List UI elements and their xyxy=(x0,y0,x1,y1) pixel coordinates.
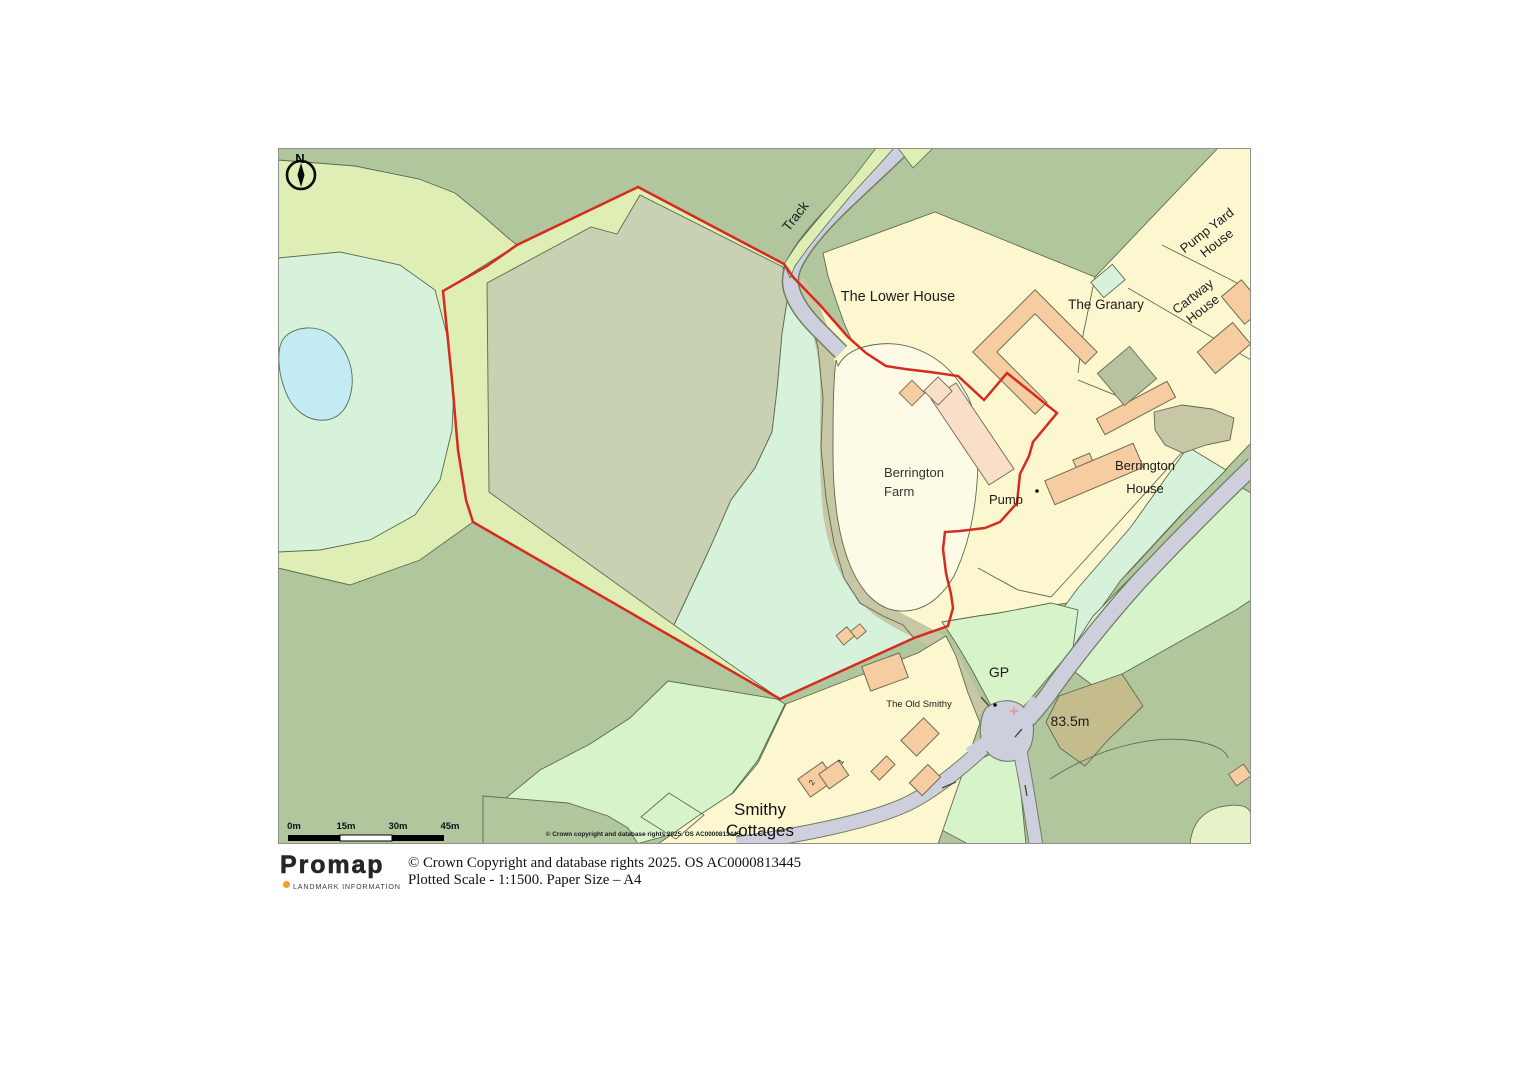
svg-text:GP: GP xyxy=(989,664,1009,680)
svg-text:Smithy: Smithy xyxy=(734,800,786,819)
svg-text:30m: 30m xyxy=(388,821,407,832)
svg-text:N: N xyxy=(295,151,304,166)
svg-text:Berrington: Berrington xyxy=(1115,458,1175,473)
svg-text:83.5m: 83.5m xyxy=(1051,713,1090,729)
svg-text:The Lower House: The Lower House xyxy=(841,289,955,305)
svg-text:House: House xyxy=(1126,481,1164,496)
svg-text:0m: 0m xyxy=(287,821,301,832)
svg-text:© Crown copyright and database: © Crown copyright and database rights 20… xyxy=(546,830,741,838)
svg-text:45m: 45m xyxy=(440,821,459,832)
svg-text:The Granary: The Granary xyxy=(1068,297,1144,312)
svg-text:15m: 15m xyxy=(336,821,355,832)
svg-text:The Old Smithy: The Old Smithy xyxy=(886,699,952,710)
svg-text:Pump: Pump xyxy=(989,492,1023,507)
svg-text:Berrington: Berrington xyxy=(884,465,944,480)
svg-text:Farm: Farm xyxy=(884,484,914,499)
